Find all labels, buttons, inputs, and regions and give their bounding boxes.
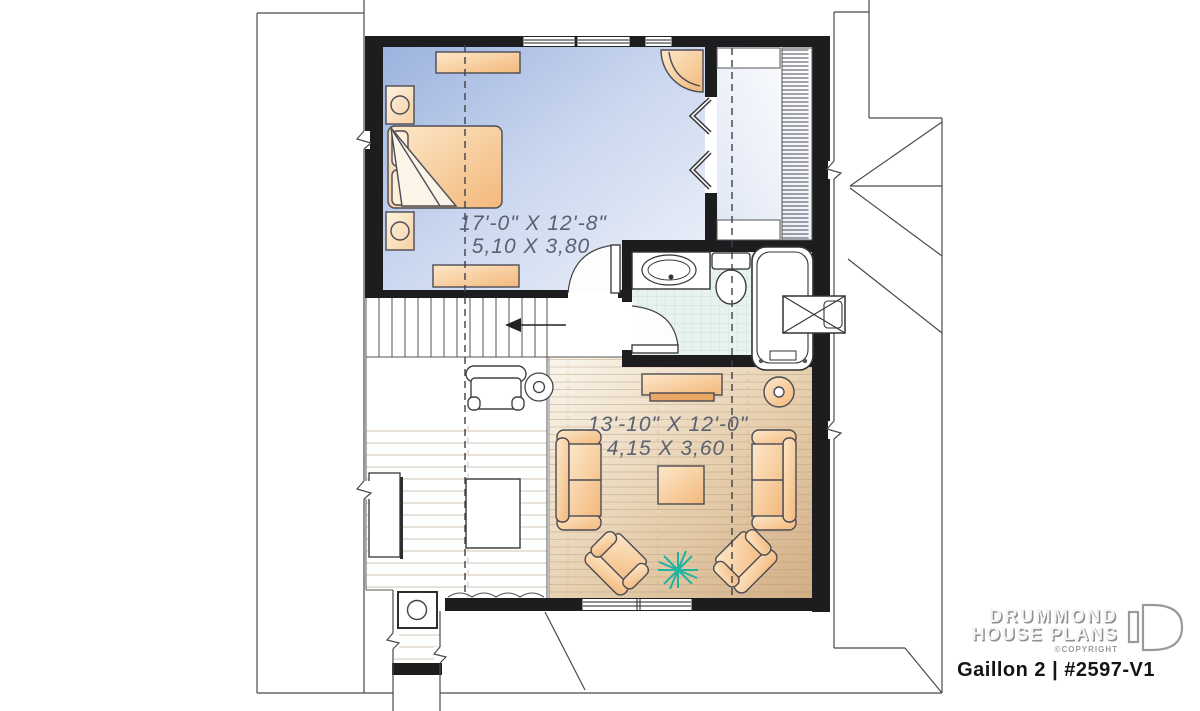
window-south xyxy=(582,599,692,611)
toilet-bowl xyxy=(716,270,746,304)
closet-shelf-bottom xyxy=(717,220,780,240)
gable-roof-lines xyxy=(848,122,942,333)
faucet-dot xyxy=(759,359,763,363)
dresser-top xyxy=(436,52,520,73)
nightstand-bottom xyxy=(386,212,414,250)
drummond-d-icon xyxy=(1129,605,1182,650)
sofa-left xyxy=(556,430,601,530)
logo-line2: HOUSE PLANS xyxy=(971,624,1118,644)
bedroom-dimension-metric: 5,10 X 3,80 xyxy=(472,235,590,258)
vanity-sink xyxy=(632,252,710,289)
bookcase xyxy=(369,473,403,559)
living-dimension-metric: 4,15 X 3,60 xyxy=(607,437,725,460)
door-leaf xyxy=(611,245,620,293)
window-north-3 xyxy=(645,37,672,47)
branding-block: DRUMMOND DRUMMOND HOUSE PLANS HOUSE PLAN… xyxy=(955,605,1182,681)
loft-table xyxy=(466,479,520,548)
chimney-base-wall xyxy=(392,663,442,675)
copyright-label: ©COPYRIGHT xyxy=(1055,645,1118,654)
door-opening xyxy=(621,302,633,350)
closet-hanging-rod xyxy=(782,48,812,240)
wall-closet-west-lower xyxy=(705,193,717,240)
plan-title: Gaillon 2 | #2597-V1 Gaillon 2 | #2597-V… xyxy=(955,658,1155,682)
sofa-right xyxy=(752,430,796,530)
dresser-bottom xyxy=(433,265,519,287)
wall-west-bedroom xyxy=(365,36,383,298)
living-dimension-imperial: 13'-10" X 12'-0" xyxy=(588,413,749,436)
round-side-table xyxy=(525,373,553,401)
toilet-tank xyxy=(712,253,750,269)
chimney-box xyxy=(783,296,845,333)
tub-seat xyxy=(770,351,796,360)
bed xyxy=(388,126,502,208)
plan-title-text: Gaillon 2 | #2597-V1 xyxy=(957,659,1155,681)
loft-armchair xyxy=(466,366,526,410)
floor-plan-canvas: 17'-0" X 12'-8" 5,10 X 3,80 13'-10" X 12… xyxy=(0,0,1200,711)
wall-bedroom-south-left xyxy=(365,290,568,298)
window-north-2 xyxy=(577,37,630,47)
wall-closet-west-upper xyxy=(705,47,717,97)
flue-circle xyxy=(408,601,427,620)
logo-wordmark: DRUMMOND DRUMMOND HOUSE PLANS HOUSE PLAN… xyxy=(971,606,1119,654)
wall-bathroom-west-upper xyxy=(622,252,632,302)
logo-line1: DRUMMOND xyxy=(989,606,1118,626)
nightstand-top xyxy=(386,86,414,124)
toilet xyxy=(712,253,750,304)
chimney-column xyxy=(398,592,437,628)
roof-valley-line xyxy=(545,612,585,690)
closet-shelf-top xyxy=(717,48,780,68)
round-pouf xyxy=(764,377,794,407)
floor-plan-svg: 17'-0" X 12'-8" 5,10 X 3,80 13'-10" X 12… xyxy=(0,0,1200,711)
coffee-table xyxy=(658,466,704,504)
window-north-1 xyxy=(523,37,575,47)
faucet-dot xyxy=(803,359,807,363)
plant-icon xyxy=(658,551,698,589)
door-leaf xyxy=(632,345,678,353)
drain xyxy=(669,275,673,279)
shadow xyxy=(400,477,403,559)
bedroom-dimension-imperial: 17'-0" X 12'-8" xyxy=(459,212,607,235)
console-table xyxy=(642,374,722,401)
